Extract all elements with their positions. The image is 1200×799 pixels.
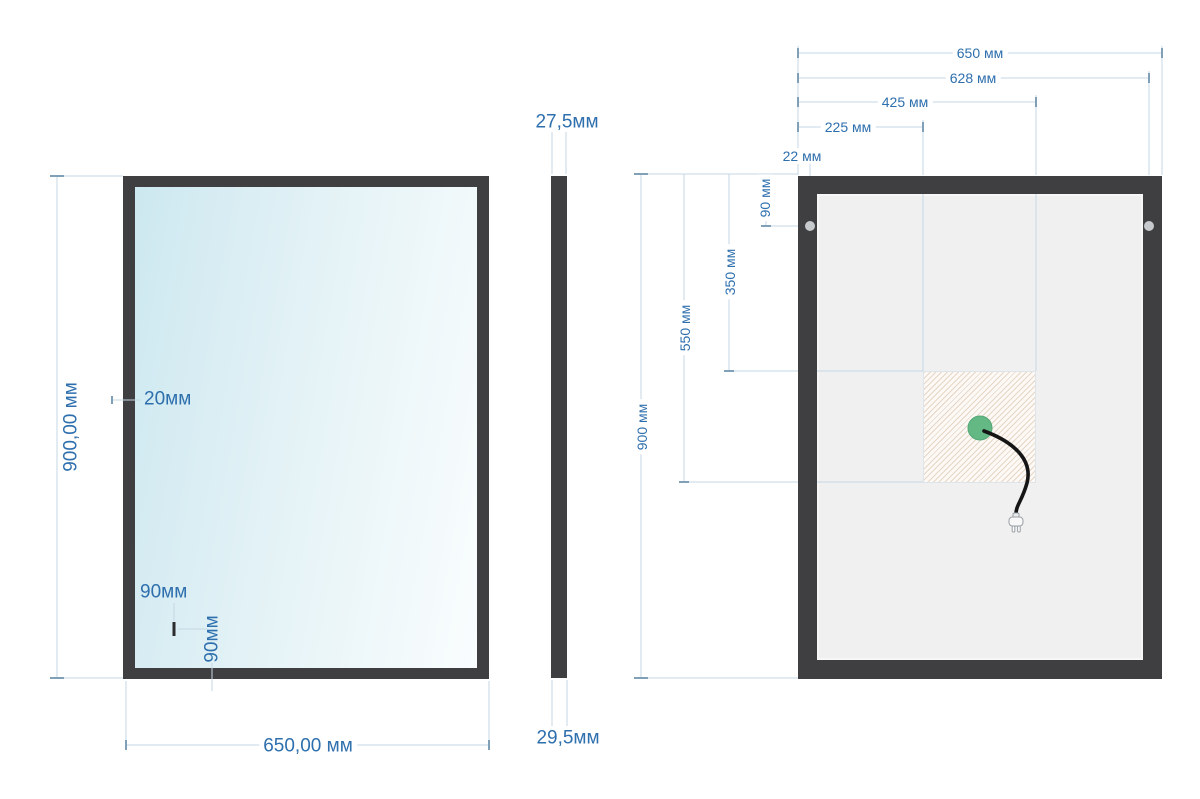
dim-label-socket-bottom: 550 мм: [677, 301, 693, 356]
dim-label-hole-from-top: 90 мм: [757, 175, 773, 222]
power-connection-point: [968, 416, 992, 440]
dim-label-hole-inset: 22 мм: [779, 148, 826, 164]
dim-label-back-height: 900 мм: [634, 400, 650, 455]
power-cable: [984, 431, 1028, 514]
power-plug-icon: [1009, 513, 1023, 532]
dim-label-side-top-depth: 27,5мм: [535, 113, 598, 132]
dim-label-side-bottom-depth: 29,5мм: [536, 729, 599, 748]
dim-label-frame-width: 20мм: [144, 390, 191, 409]
dim-label-socket-left: 225 мм: [821, 119, 876, 135]
dim-label-back-width: 650 мм: [953, 45, 1008, 61]
mirror-technical-drawing: 900,00 мм 650,00 мм 20мм 90мм 90мм 27,5м…: [0, 0, 1200, 799]
dim-label-front-width: 650,00 мм: [259, 736, 357, 757]
dim-label-front-height: 900,00 мм: [61, 378, 82, 476]
dim-label-sensor-from-left: 90мм: [140, 583, 187, 602]
dim-label-sensor-from-bottom: 90мм: [203, 615, 222, 662]
dim-label-socket-top: 350 мм: [722, 245, 738, 300]
dim-label-holes-span: 628 мм: [946, 70, 1001, 86]
dim-label-socket-right: 425 мм: [878, 94, 933, 110]
